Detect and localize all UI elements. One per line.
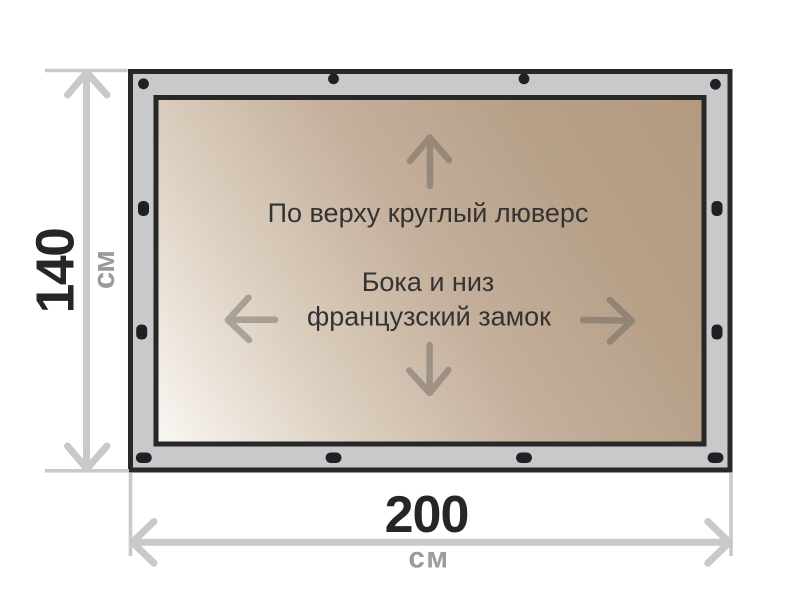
svg-text:140: 140 (27, 229, 86, 314)
svg-text:французский замок: французский замок (307, 302, 551, 332)
svg-text:см: см (408, 542, 449, 575)
svg-text:200: 200 (385, 486, 469, 544)
svg-text:Бока и низ: Бока и низ (362, 267, 495, 297)
svg-text:см: см (86, 251, 121, 289)
svg-text:По верху круглый люверс: По верху круглый люверс (268, 198, 589, 228)
